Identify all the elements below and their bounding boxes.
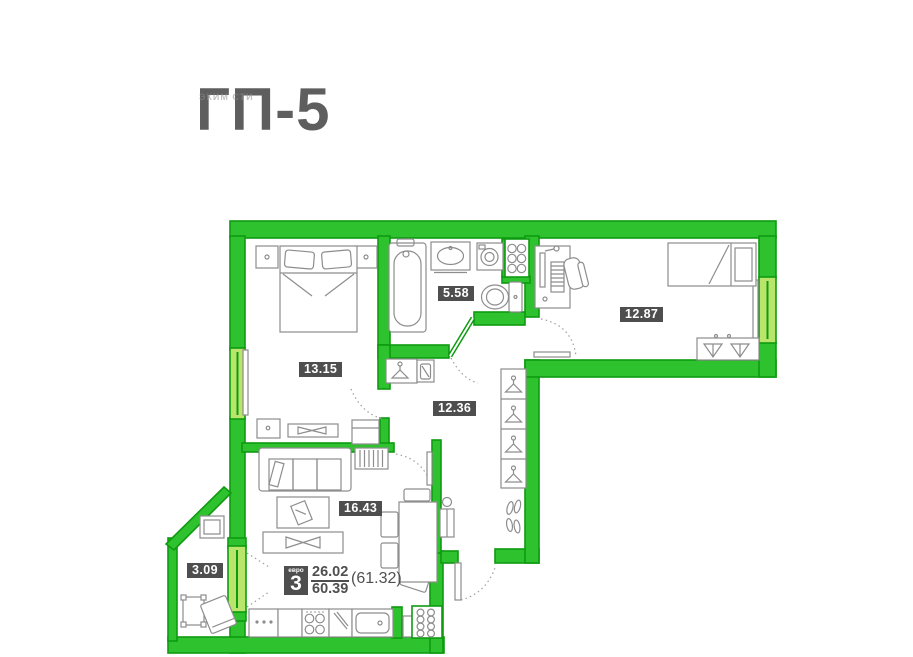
nightstand-icon [355, 246, 377, 268]
fridge-icon [249, 609, 278, 637]
entry-door-leaf [455, 563, 461, 600]
total-area-value: 60.39 [311, 582, 349, 596]
desk-icon [535, 246, 570, 308]
kitchen-counter [278, 609, 302, 637]
wardrobe-icon [501, 369, 526, 488]
double-bed-icon [280, 246, 357, 332]
sink-icon [431, 242, 470, 273]
vent-shaft-icon [505, 239, 529, 277]
nightstand-icon [256, 246, 278, 268]
tv-console-icon [288, 424, 338, 437]
rooms-count: 3 [284, 574, 308, 593]
stove-icon [302, 609, 329, 637]
area-with-balcony-value: (61.32) [351, 571, 402, 587]
watermark: ЭКИМ СТИ [199, 92, 254, 102]
layout-type-badge: евро 3 [284, 566, 308, 595]
dresser-icon [257, 419, 280, 438]
living-room-door-leaf [427, 452, 432, 485]
drying-rack-icon [697, 335, 759, 361]
cutting-board-icon [329, 609, 352, 637]
bathroom-door [450, 318, 473, 356]
window-right [753, 277, 776, 343]
tv-stand-icon [263, 532, 343, 553]
shelf-icon [534, 352, 570, 357]
window-left [230, 348, 248, 419]
floor-plan-page: ЭКИМ СТИ ГП-5 [0, 0, 913, 657]
balcony-stool-icon [200, 516, 224, 538]
bathtub-icon [389, 239, 426, 332]
room-label-balcony: 3.09 [187, 563, 223, 578]
area-fraction: 26.02 60.39 [311, 566, 349, 596]
room-label-living-kitchen: 16.43 [339, 501, 382, 516]
shelf-rack-icon [355, 448, 388, 469]
shoes-icon [506, 500, 522, 534]
room-label-bedroom: 13.15 [299, 362, 342, 377]
balcony-door [228, 546, 269, 612]
hall-stool-icon [440, 498, 454, 538]
living-area-value: 26.02 [311, 566, 349, 582]
floor-plan-drawing [0, 0, 913, 657]
coffee-table-icon [277, 497, 329, 528]
toilet-icon [482, 282, 523, 312]
coat-rack-icon [386, 359, 434, 383]
dresser-icon [352, 420, 379, 444]
room-label-hallway: 12.36 [433, 401, 476, 416]
page-title: ГП-5 [196, 80, 331, 140]
sofa-icon [259, 448, 351, 491]
room-label-bedroom-2: 12.87 [620, 307, 663, 322]
room-label-bathroom: 5.58 [438, 286, 474, 301]
vent-shaft-icon [412, 606, 442, 638]
kitchen-sink-icon [352, 609, 393, 637]
single-bed-icon [668, 243, 756, 286]
washing-machine-icon [477, 243, 503, 270]
